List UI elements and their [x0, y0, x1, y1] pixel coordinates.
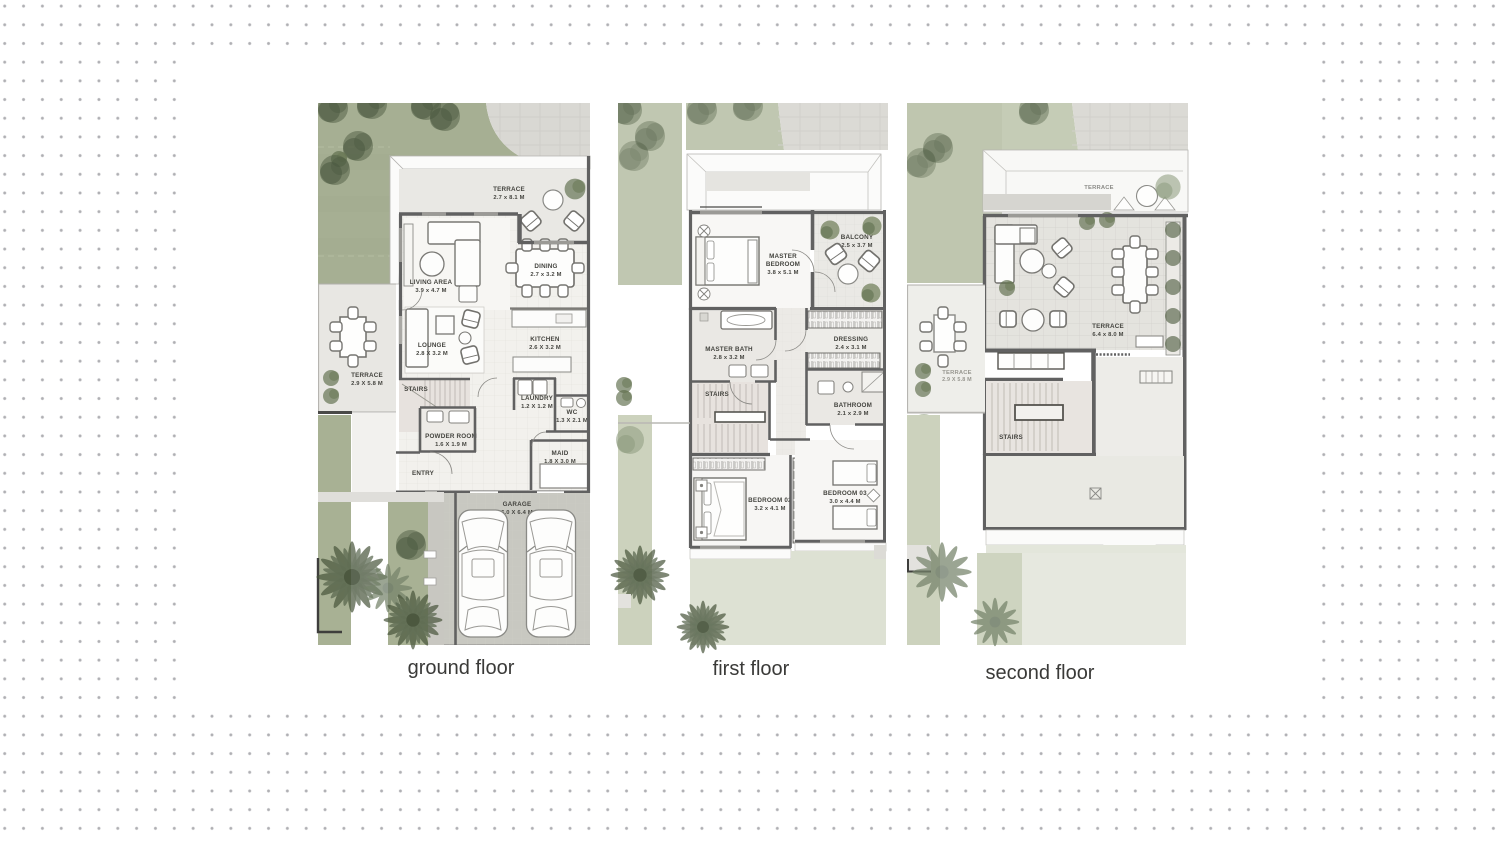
svg-text:1.6 X 1.9 M: 1.6 X 1.9 M — [435, 442, 467, 448]
svg-text:BALCONY: BALCONY — [841, 234, 874, 241]
svg-text:MASTER BATH: MASTER BATH — [705, 346, 753, 353]
svg-text:BEDROOM: BEDROOM — [766, 261, 800, 268]
svg-text:TERRACE: TERRACE — [942, 370, 971, 376]
svg-text:TERRACE: TERRACE — [1092, 323, 1124, 330]
svg-text:2.9 X 5.8 M: 2.9 X 5.8 M — [351, 381, 383, 387]
svg-text:ENTRY: ENTRY — [412, 470, 435, 477]
svg-text:LAUNDRY: LAUNDRY — [521, 395, 554, 402]
svg-text:MAID: MAID — [552, 450, 569, 457]
svg-text:2.5 x 3.7 M: 2.5 x 3.7 M — [841, 243, 872, 249]
svg-text:second floor: second floor — [986, 662, 1095, 684]
svg-text:LOUNGE: LOUNGE — [418, 342, 446, 349]
svg-text:3.2 x 4.1 M: 3.2 x 4.1 M — [754, 506, 785, 512]
svg-text:2.7 x 8.1 M: 2.7 x 8.1 M — [493, 195, 524, 201]
svg-text:DRESSING: DRESSING — [834, 336, 869, 343]
svg-text:TERRACE: TERRACE — [493, 186, 525, 193]
svg-text:1.3 X 2.1 M: 1.3 X 2.1 M — [556, 418, 588, 424]
svg-text:KITCHEN: KITCHEN — [530, 336, 560, 343]
svg-text:POWDER ROOM: POWDER ROOM — [425, 433, 477, 440]
svg-text:3.9 x 4.7 M: 3.9 x 4.7 M — [415, 288, 446, 294]
svg-text:3.0 x 4.4 M: 3.0 x 4.4 M — [829, 499, 860, 505]
svg-text:STAIRS: STAIRS — [705, 391, 729, 398]
svg-text:2.6 X 3.2 M: 2.6 X 3.2 M — [529, 345, 561, 351]
svg-text:STAIRS: STAIRS — [999, 434, 1023, 441]
svg-text:2.9 X 5.8 M: 2.9 X 5.8 M — [942, 377, 972, 383]
svg-text:BEDROOM 02: BEDROOM 02 — [748, 497, 792, 504]
svg-text:3.8 x 5.1 M: 3.8 x 5.1 M — [767, 270, 798, 276]
svg-text:ground floor: ground floor — [408, 657, 515, 679]
svg-text:2.4 x 3.1 M: 2.4 x 3.1 M — [835, 345, 866, 351]
svg-text:LIVING AREA: LIVING AREA — [410, 279, 453, 286]
svg-text:2.8 x 3.2 M: 2.8 x 3.2 M — [713, 355, 744, 361]
svg-text:BATHROOM: BATHROOM — [834, 402, 872, 409]
svg-text:6.4 x 8.0 M: 6.4 x 8.0 M — [1092, 332, 1123, 338]
svg-text:2.7 x 3.2 M: 2.7 x 3.2 M — [530, 272, 561, 278]
svg-text:DINING: DINING — [534, 263, 557, 270]
svg-text:WC: WC — [567, 409, 578, 416]
svg-text:2.8 X 3.2 M: 2.8 X 3.2 M — [416, 351, 448, 357]
svg-text:GARAGE: GARAGE — [503, 501, 532, 508]
svg-text:TERRACE: TERRACE — [351, 372, 383, 379]
svg-text:TERRACE: TERRACE — [1084, 185, 1113, 191]
svg-text:1.2 X 1.2 M: 1.2 X 1.2 M — [521, 404, 553, 410]
svg-text:2.1 x 2.9 M: 2.1 x 2.9 M — [837, 411, 868, 417]
svg-text:first floor: first floor — [713, 658, 790, 680]
svg-text:MASTER: MASTER — [769, 253, 797, 260]
svg-text:STAIRS: STAIRS — [404, 386, 428, 393]
svg-text:BEDROOM 03: BEDROOM 03 — [823, 490, 867, 497]
